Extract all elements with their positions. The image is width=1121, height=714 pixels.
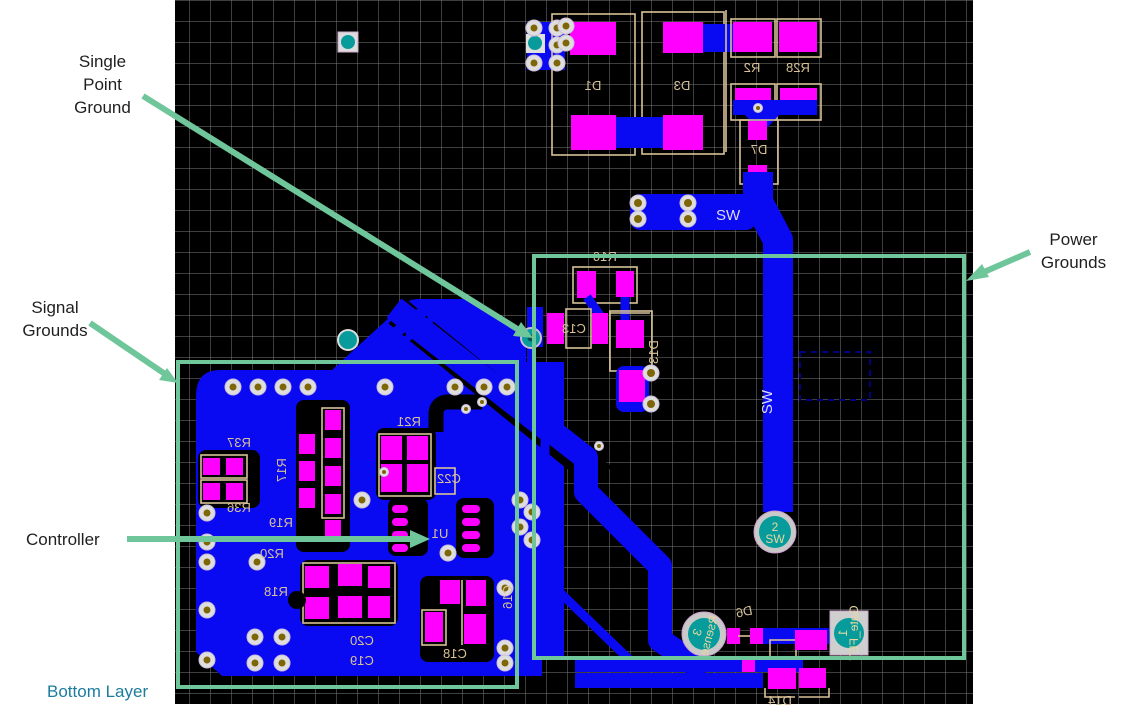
drill-hole [204, 607, 211, 614]
svg-text:C16: C16 [500, 585, 515, 609]
testpoint-sw: 2 SW [754, 511, 796, 553]
power-grounds-arrow [966, 252, 1030, 281]
svg-text:D1: D1 [585, 78, 602, 93]
svg-text:C13: C13 [562, 321, 586, 336]
svg-text:R21: R21 [397, 414, 421, 429]
controller-label: Controller [26, 528, 100, 551]
sw-bar-net-label: SW [716, 207, 741, 224]
svg-text:D7: D7 [751, 142, 768, 157]
drill-hole [305, 384, 312, 391]
drill-hole [252, 634, 259, 641]
power-grounds-label: Power Grounds [1026, 228, 1121, 274]
drill-hole [279, 634, 286, 641]
svg-text:C22: C22 [437, 471, 461, 486]
drill-hole [252, 660, 259, 667]
drill-hole [445, 550, 452, 557]
testpoint-rsense: 3 Rsense [682, 611, 726, 657]
svg-text:R36: R36 [227, 500, 251, 515]
svg-text:C19: C19 [350, 653, 374, 668]
testpoint-gate-fet: 1 Gate_FET [830, 605, 868, 661]
svg-text:C18: C18 [443, 646, 467, 661]
drill-hole [502, 660, 509, 667]
svg-text:R19: R19 [269, 515, 293, 530]
svg-text:R2: R2 [744, 60, 761, 75]
drill-hole [254, 559, 261, 566]
drill-hole [563, 40, 570, 47]
signal-grounds-label: Signal Grounds [0, 296, 110, 342]
drill-hole [279, 660, 286, 667]
svg-text:R20: R20 [260, 546, 284, 561]
svg-text:SW: SW [765, 532, 785, 546]
svg-text:U1: U1 [432, 526, 449, 541]
svg-text:Gate_FET: Gate_FET [847, 605, 861, 661]
drill-hole [554, 60, 561, 67]
drill-hole [204, 510, 211, 517]
svg-text:R28: R28 [786, 60, 810, 75]
pcb-figure: 2 SW 3 Rsense 1 Gate_FET D1 D3 R2 R28 D7… [0, 0, 1121, 714]
drill-hole [359, 497, 366, 504]
drill-hole [502, 645, 509, 652]
svg-text:D13: D13 [646, 340, 661, 364]
svg-text:D14: D14 [768, 693, 792, 708]
drill-hole [452, 384, 459, 391]
svg-text:D3: D3 [674, 78, 691, 93]
drill-hole [230, 384, 237, 391]
drill-hole [382, 384, 389, 391]
drill-hole [255, 384, 262, 391]
drill-hole [504, 384, 511, 391]
svg-text:R17: R17 [274, 458, 289, 482]
drill-hole [204, 657, 211, 664]
drill-hole [531, 60, 538, 67]
single-point-ground-label: Single Point Ground [40, 50, 165, 119]
pcb-canvas: 2 SW 3 Rsense 1 Gate_FET D1 D3 R2 R28 D7… [0, 0, 1121, 714]
drill-hole [563, 23, 570, 30]
svg-text:C20: C20 [350, 633, 374, 648]
drill-hole [204, 559, 211, 566]
drill-hole [531, 25, 538, 32]
sw-trace-net-label: SW [759, 389, 776, 414]
drill-hole [481, 384, 488, 391]
svg-text:R37: R37 [227, 435, 251, 450]
drill-hole [280, 384, 287, 391]
bottom-layer-label: Bottom Layer [47, 682, 148, 702]
svg-text:R18: R18 [264, 584, 288, 599]
